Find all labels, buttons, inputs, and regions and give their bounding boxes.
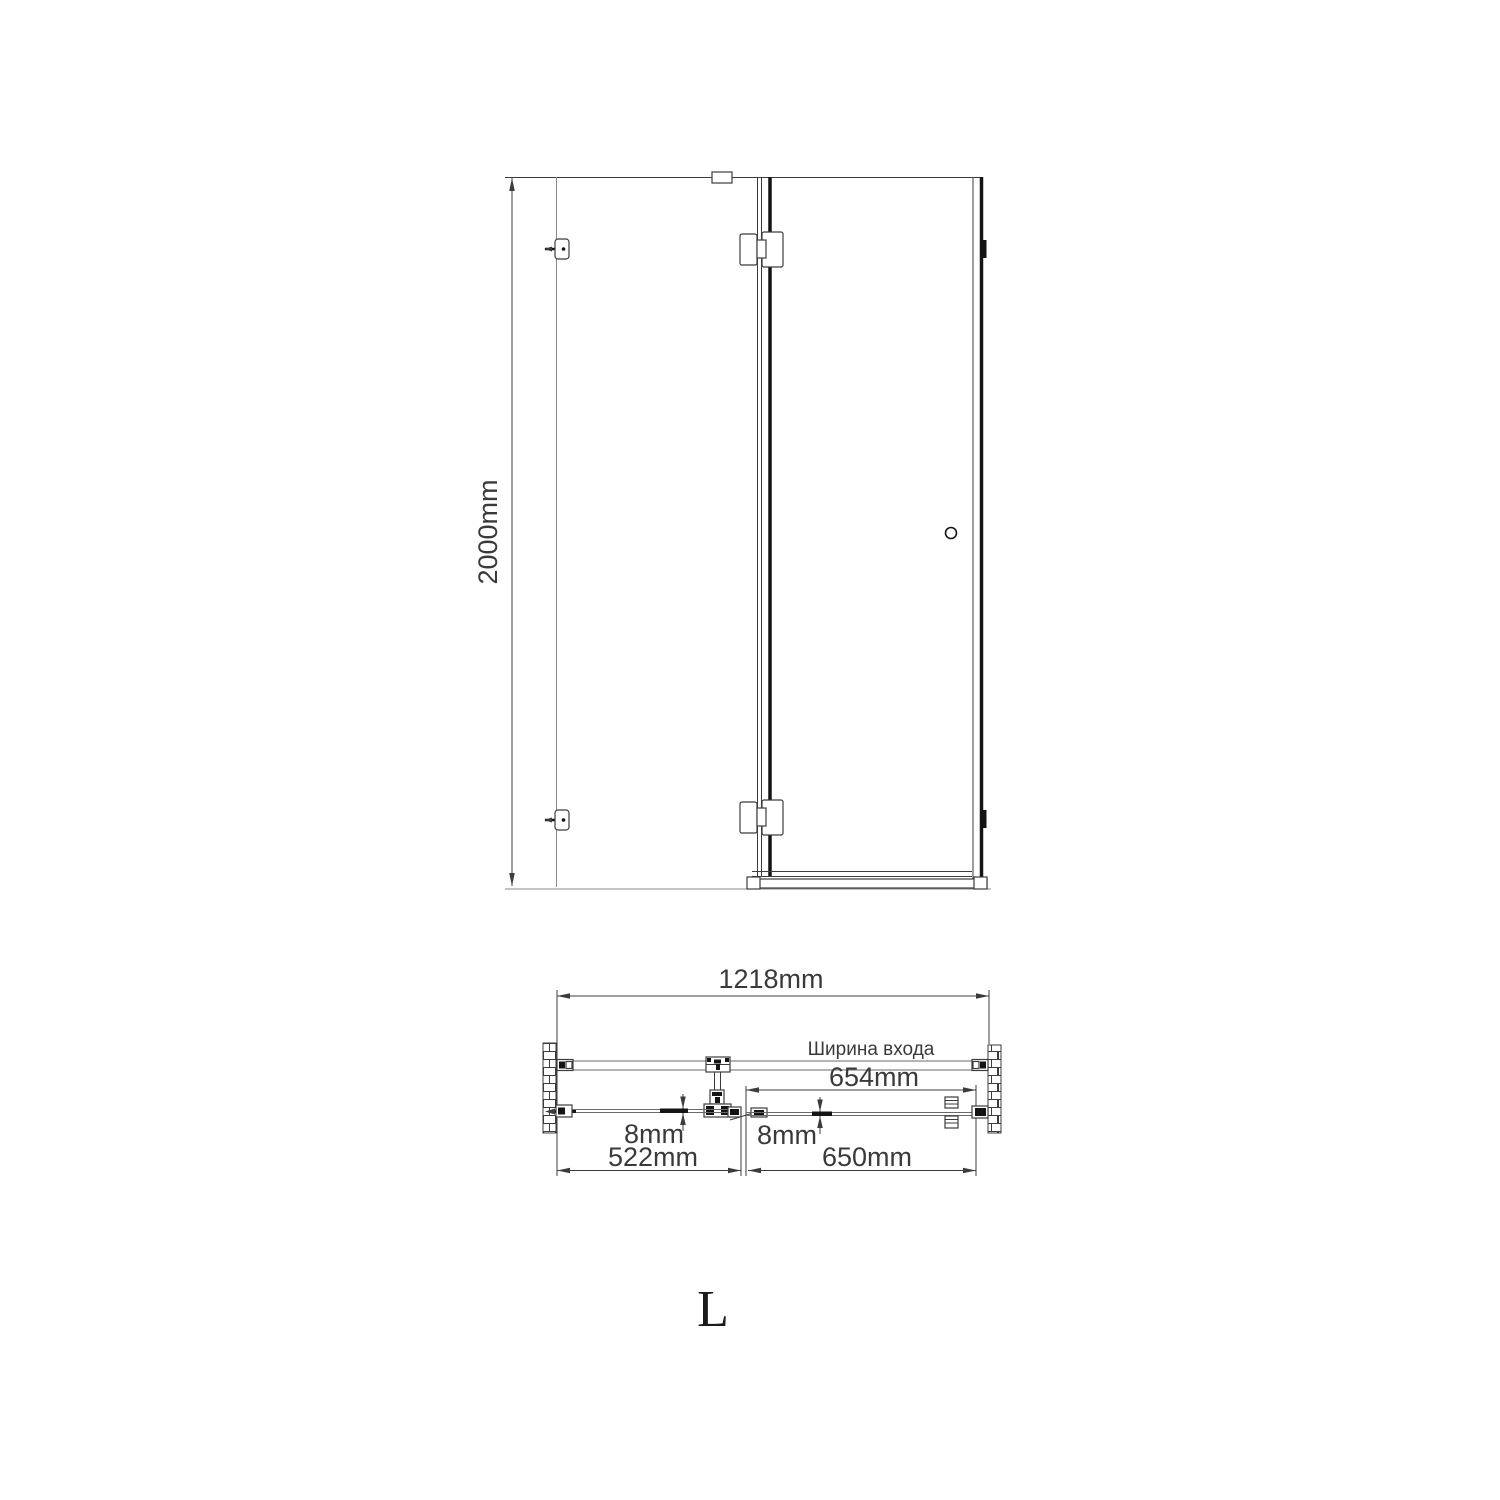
top-hinge	[740, 232, 783, 267]
total-width-label: 1218mm	[718, 964, 823, 994]
bottom-hinge	[740, 800, 783, 835]
plan-view: 1218mm Ширина входа 654mm 8mm 8mm	[543, 964, 1001, 1176]
right-profile-tick-top	[982, 240, 987, 258]
right-wall-door-clamp	[972, 1106, 988, 1118]
top-hinge-wall-plate	[740, 234, 757, 265]
support-bar-left-fitting	[557, 1060, 573, 1071]
shower-door-drawing: 2000mm	[0, 0, 1500, 1500]
sill-end-cap-left	[747, 877, 760, 889]
glass-thickness-right: 8mm	[757, 1097, 823, 1150]
glass-thickness-left: 8mm	[624, 1094, 686, 1149]
wall-bracket-bottom	[544, 810, 569, 830]
door-handle-hole	[946, 528, 957, 539]
fixed-glass-section	[660, 1109, 688, 1114]
door-pivot-assembly	[728, 1107, 767, 1120]
threshold-sill	[748, 879, 987, 888]
entrance-width-label: 654mm	[829, 1062, 919, 1092]
door-width-label: 650mm	[822, 1142, 912, 1172]
height-dimension-label: 2000mm	[473, 479, 503, 584]
bottom-hinge-knuckle	[757, 808, 766, 826]
center-support-bracket	[704, 1057, 731, 1117]
left-wall-section	[543, 1043, 556, 1133]
height-dimension: 2000mm	[473, 178, 515, 886]
technical-drawing-page: 2000mm	[0, 0, 1500, 1500]
bottom-hinge-wall-plate	[740, 802, 757, 833]
total-width-dimension: 1218mm	[557, 964, 989, 999]
door-glass-section	[812, 1112, 832, 1117]
glass-thickness-right-label: 8mm	[757, 1120, 817, 1150]
top-hinge-knuckle	[757, 240, 766, 258]
sill-end-cap-right	[974, 877, 987, 889]
front-view: 2000mm	[473, 172, 991, 889]
right-profile-tick-bottom	[982, 810, 987, 828]
entrance-title: Ширина входа	[808, 1039, 935, 1060]
orientation-label: L	[697, 1281, 729, 1338]
wall-bracket-top	[544, 239, 569, 259]
top-bracket	[712, 172, 732, 183]
support-bar-right-fitting	[972, 1060, 988, 1071]
entrance-width-dimension: 654mm	[746, 1062, 976, 1093]
right-wall-section	[988, 1045, 1001, 1133]
fixed-panel-width-label: 522mm	[608, 1142, 698, 1172]
fixed-panel-width-dimension: 522mm	[557, 1142, 741, 1173]
